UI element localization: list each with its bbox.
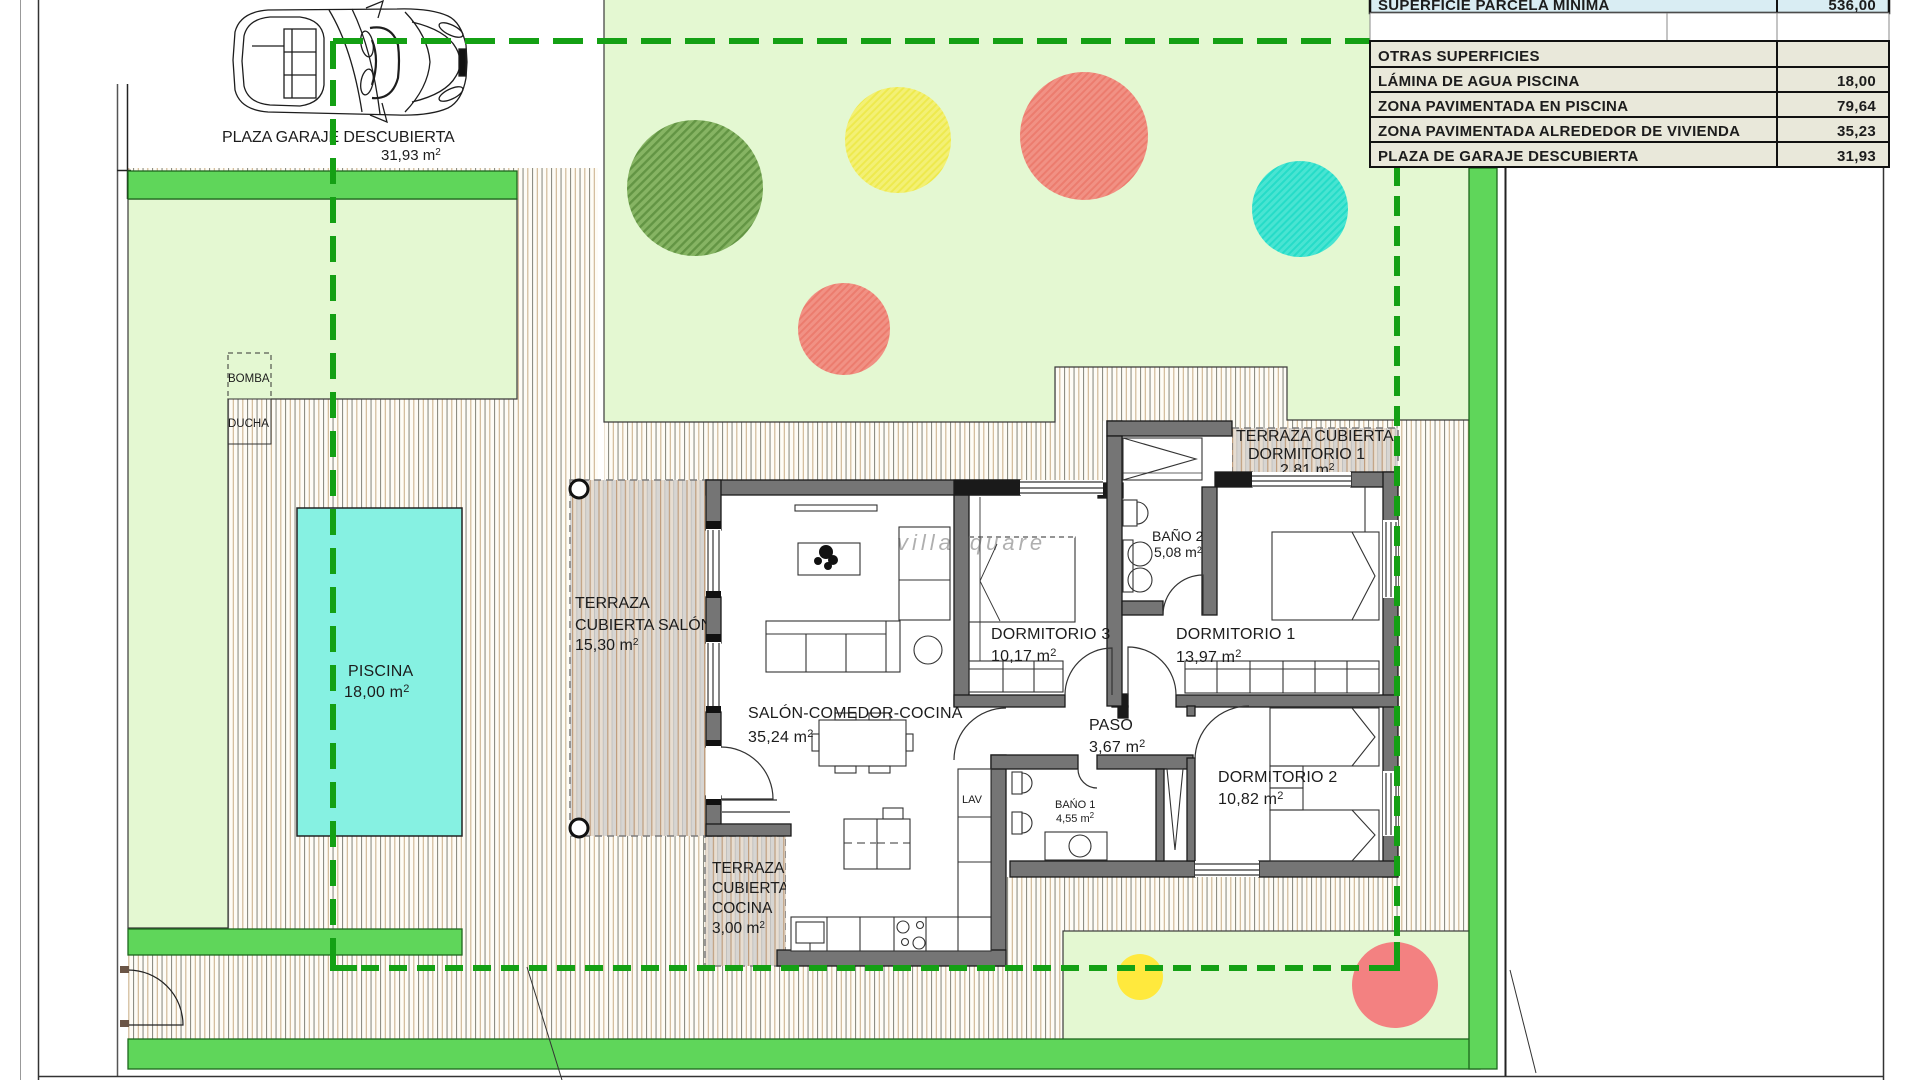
svg-text:13,97 m2: 13,97 m2 [1176,648,1242,666]
svg-text:PLAZA DE GARAJE DESCUBIERTA: PLAZA DE GARAJE DESCUBIERTA [1378,148,1639,165]
svg-text:PLAZA GARAJE DESCUBIERTA: PLAZA GARAJE DESCUBIERTA [222,129,455,146]
svg-text:SALÓN-COMEDOR-COCINA: SALÓN-COMEDOR-COCINA [748,703,963,722]
svg-text:ZONA PAVIMENTADA EN PISCINA: ZONA PAVIMENTADA EN PISCINA [1378,98,1628,115]
svg-text:79,64: 79,64 [1837,98,1876,115]
svg-text:TERRAZA CUBIERTA: TERRAZA CUBIERTA [1236,428,1394,445]
svg-text:35,23: 35,23 [1837,123,1876,140]
svg-text:35,24 m2: 35,24 m2 [748,728,814,746]
svg-text:31,93: 31,93 [1837,148,1876,165]
svg-text:LÁMINA DE AGUA PISCINA: LÁMINA DE AGUA PISCINA [1378,73,1580,90]
svg-text:4,55 m2: 4,55 m2 [1056,811,1095,825]
svg-text:TERRAZA: TERRAZA [712,860,785,877]
svg-text:18,00: 18,00 [1837,73,1876,90]
svg-text:COCINA: COCINA [712,900,773,917]
svg-text:DUCHA: DUCHA [228,418,269,430]
svg-text:10,82 m2: 10,82 m2 [1218,790,1284,808]
svg-text:18,00 m2: 18,00 m2 [344,683,410,701]
svg-text:LAV: LAV [962,794,983,806]
svg-text:31,93 m2: 31,93 m2 [381,147,441,164]
svg-text:villasquare: villasquare [897,530,1046,555]
svg-text:DORMITORIO 1: DORMITORIO 1 [1248,446,1365,463]
svg-text:BAÑO 2: BAÑO 2 [1152,528,1204,544]
svg-text:BAŃO 1: BAŃO 1 [1055,798,1095,811]
svg-text:TERRAZA: TERRAZA [575,595,650,612]
svg-text:PISCINA: PISCINA [348,663,414,680]
svg-text:BOMBA: BOMBA [228,373,270,385]
svg-text:CUBIERTA: CUBIERTA [712,880,790,897]
svg-text:10,17 m2: 10,17 m2 [991,647,1057,665]
svg-text:DORMITORIO 3: DORMITORIO 3 [991,626,1110,643]
svg-text:DORMITORIO 1: DORMITORIO 1 [1176,626,1295,643]
svg-text:CUBIERTA SALÓN: CUBIERTA SALÓN [575,615,712,634]
svg-text:SUPERFICIE PARCELA MINIMA: SUPERFICIE PARCELA MINIMA [1378,0,1610,14]
svg-text:DORMITORIO 2: DORMITORIO 2 [1218,769,1337,786]
svg-text:5,08 m2: 5,08 m2 [1154,544,1202,560]
svg-text:3,67 m2: 3,67 m2 [1089,738,1145,756]
svg-text:OTRAS SUPERFICIES: OTRAS SUPERFICIES [1378,48,1540,65]
svg-text:3,00 m2: 3,00 m2 [712,920,765,937]
svg-text:536,00: 536,00 [1828,0,1876,14]
svg-text:ZONA PAVIMENTADA ALREDEDOR DE: ZONA PAVIMENTADA ALREDEDOR DE VIVIENDA [1378,123,1740,140]
svg-text:PASO: PASO [1089,717,1133,734]
svg-text:15,30 m2: 15,30 m2 [575,637,639,654]
